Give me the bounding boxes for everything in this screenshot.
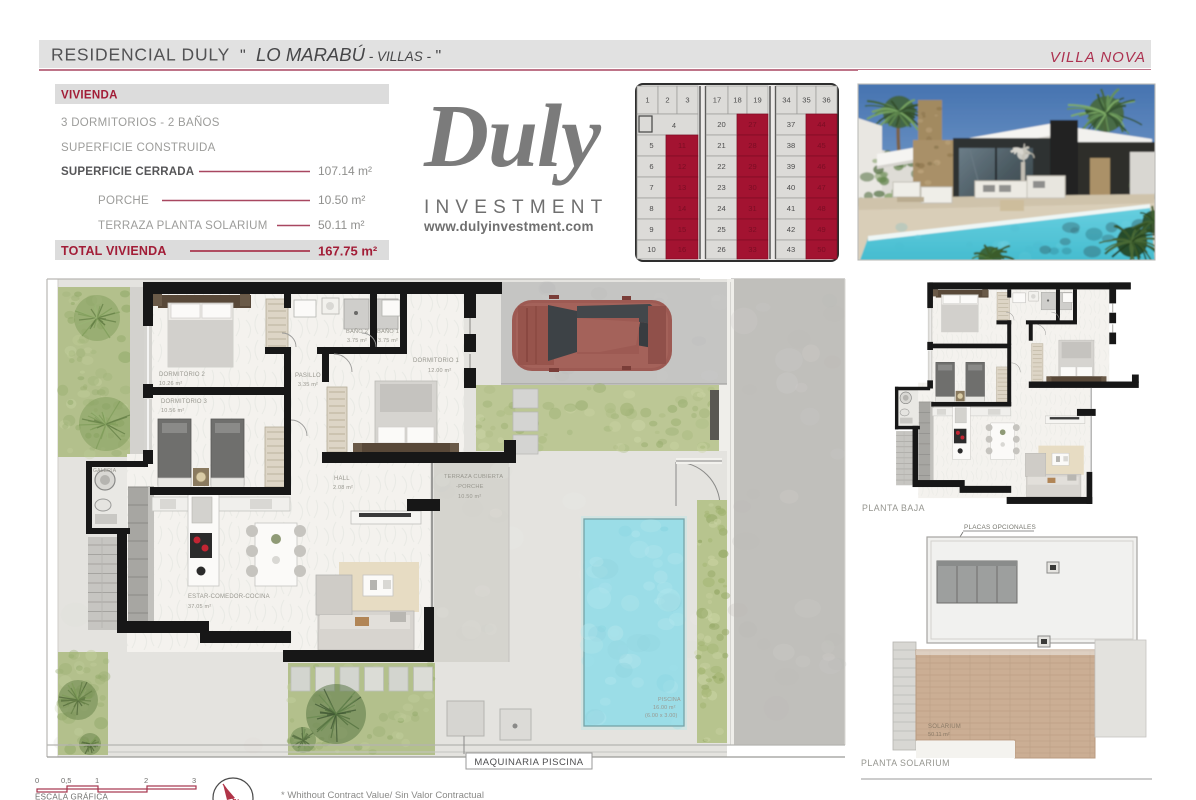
svg-text:TOTAL VIVIENDA: TOTAL VIVIENDA (61, 244, 167, 258)
svg-text:9: 9 (649, 225, 653, 234)
svg-text:24: 24 (717, 204, 725, 213)
svg-text:SUPERFICIE CONSTRUIDA: SUPERFICIE CONSTRUIDA (61, 142, 216, 154)
svg-text:-PORCHE: -PORCHE (456, 484, 484, 490)
svg-text:5: 5 (649, 141, 653, 150)
svg-text:25: 25 (717, 225, 725, 234)
svg-text:34: 34 (782, 96, 790, 105)
svg-text:11: 11 (678, 141, 686, 150)
svg-text:ESTAR-COMEDOR-COCINA: ESTAR-COMEDOR-COCINA (188, 594, 270, 600)
svg-text:10.50 m²: 10.50 m² (458, 494, 481, 500)
svg-text:3.35 m²: 3.35 m² (298, 382, 318, 388)
svg-text:3 DORMITORIOS - 2 BAÑOS: 3 DORMITORIOS - 2 BAÑOS (61, 116, 220, 129)
svg-text:41: 41 (787, 204, 795, 213)
svg-text:10.50 m²: 10.50 m² (318, 193, 365, 207)
svg-text:50.11 m²: 50.11 m² (928, 732, 950, 738)
svg-text:33: 33 (748, 245, 756, 254)
svg-text:PLANTA SOLARIUM: PLANTA SOLARIUM (861, 758, 950, 768)
svg-text:42: 42 (787, 225, 795, 234)
svg-text:19: 19 (753, 96, 761, 105)
svg-text:48: 48 (817, 204, 825, 213)
svg-text:SOLARIUM: SOLARIUM (928, 724, 961, 730)
svg-text:21: 21 (717, 141, 725, 150)
svg-text:16.00 m²: 16.00 m² (653, 705, 676, 711)
svg-text:PLANTA BAJA: PLANTA BAJA (862, 503, 925, 513)
svg-text:PISCINA: PISCINA (658, 697, 681, 703)
svg-text:INVESTMENT: INVESTMENT (424, 197, 608, 218)
svg-text:BAÑO 1: BAÑO 1 (377, 328, 399, 335)
svg-text:28: 28 (748, 141, 756, 150)
svg-text:PLACAS OPCIONALES: PLACAS OPCIONALES (964, 524, 1036, 531)
svg-text:SUPERFICIE CERRADA: SUPERFICIE CERRADA (61, 166, 194, 178)
svg-text:167.75 m²: 167.75 m² (318, 244, 378, 259)
svg-text:49: 49 (817, 225, 825, 234)
svg-text:35: 35 (802, 96, 810, 105)
svg-text:www.dulyinvestment.com: www.dulyinvestment.com (423, 219, 594, 234)
svg-text:23: 23 (717, 183, 725, 192)
svg-text:10.56 m²: 10.56 m² (161, 408, 184, 414)
svg-text:TERRAZA PLANTA SOLARIUM: TERRAZA PLANTA SOLARIUM (98, 220, 268, 232)
svg-text:HALL: HALL (334, 476, 350, 482)
svg-text:ESCALA GRÁFICA: ESCALA GRÁFICA (35, 793, 108, 800)
svg-text:1: 1 (95, 776, 99, 785)
svg-text:3.75 m²: 3.75 m² (347, 338, 367, 344)
svg-text:7: 7 (649, 183, 653, 192)
svg-text:TERRAZA CUBIERTA: TERRAZA CUBIERTA (444, 474, 503, 480)
svg-text:DORMITORIO 2: DORMITORIO 2 (159, 372, 206, 378)
svg-text:1: 1 (645, 96, 649, 105)
svg-text:17: 17 (713, 96, 721, 105)
svg-text:BAÑO 2: BAÑO 2 (346, 328, 368, 335)
svg-text:* Whithout Contract Value/ Si: * Whithout Contract Value/ Sin Valor Con… (281, 790, 484, 800)
svg-text:GALERIA: GALERIA (93, 468, 117, 474)
svg-text:43: 43 (787, 245, 795, 254)
svg-text:18: 18 (733, 96, 741, 105)
svg-text:16: 16 (678, 245, 686, 254)
svg-text:VIVIENDA: VIVIENDA (61, 90, 118, 102)
svg-text:37: 37 (787, 120, 795, 129)
svg-text:DORMITORIO 1: DORMITORIO 1 (413, 358, 460, 364)
svg-text:(6.00 x 3.00): (6.00 x 3.00) (645, 713, 678, 719)
svg-text:27: 27 (748, 120, 756, 129)
svg-text:38: 38 (787, 141, 795, 150)
svg-text:36: 36 (822, 96, 830, 105)
svg-text:20: 20 (717, 120, 725, 129)
svg-text:12.00 m²: 12.00 m² (428, 368, 451, 374)
svg-text:30: 30 (748, 183, 756, 192)
svg-text:3: 3 (685, 96, 689, 105)
svg-text:14: 14 (678, 204, 686, 213)
svg-text:31: 31 (748, 204, 756, 213)
svg-text:26: 26 (717, 245, 725, 254)
svg-text:32: 32 (748, 225, 756, 234)
svg-text:2: 2 (144, 776, 148, 785)
svg-text:3: 3 (192, 776, 196, 785)
svg-text:22: 22 (717, 162, 725, 171)
svg-text:37.05 m²: 37.05 m² (188, 604, 211, 610)
svg-text:DORMITORIO 3: DORMITORIO 3 (161, 399, 208, 405)
svg-text:": " (240, 48, 246, 65)
svg-text:3.75 m²: 3.75 m² (378, 338, 398, 344)
svg-text:12: 12 (678, 162, 686, 171)
svg-text:50.11 m²: 50.11 m² (318, 218, 364, 232)
svg-text:2: 2 (665, 96, 669, 105)
svg-text:VILLA NOVA: VILLA NOVA (1050, 49, 1146, 66)
svg-text:4: 4 (672, 121, 676, 130)
svg-text:0: 0 (35, 776, 39, 785)
svg-text:15: 15 (678, 225, 686, 234)
svg-text:29: 29 (748, 162, 756, 171)
svg-text:47: 47 (817, 183, 825, 192)
svg-text:2.08 m²: 2.08 m² (333, 485, 353, 491)
svg-text:39: 39 (787, 162, 795, 171)
svg-text:8: 8 (649, 204, 653, 213)
svg-text:0,5: 0,5 (61, 776, 71, 785)
svg-text:50: 50 (817, 245, 825, 254)
svg-text:Duly: Duly (423, 87, 602, 186)
svg-text:10: 10 (647, 245, 655, 254)
svg-text:40: 40 (787, 183, 795, 192)
svg-text:RESIDENCIAL DULY: RESIDENCIAL DULY (51, 45, 230, 65)
svg-text:10.26 m²: 10.26 m² (159, 381, 182, 387)
svg-text:13: 13 (678, 183, 686, 192)
svg-text:PORCHE: PORCHE (98, 195, 149, 207)
svg-text:107.14 m²: 107.14 m² (318, 164, 372, 178)
svg-text:MAQUINARIA PISCINA: MAQUINARIA PISCINA (474, 757, 583, 768)
svg-text:6: 6 (649, 162, 653, 171)
svg-text:PASILLO: PASILLO (295, 373, 321, 379)
svg-text:44: 44 (817, 120, 825, 129)
svg-text:46: 46 (817, 162, 825, 171)
svg-text:45: 45 (817, 141, 825, 150)
